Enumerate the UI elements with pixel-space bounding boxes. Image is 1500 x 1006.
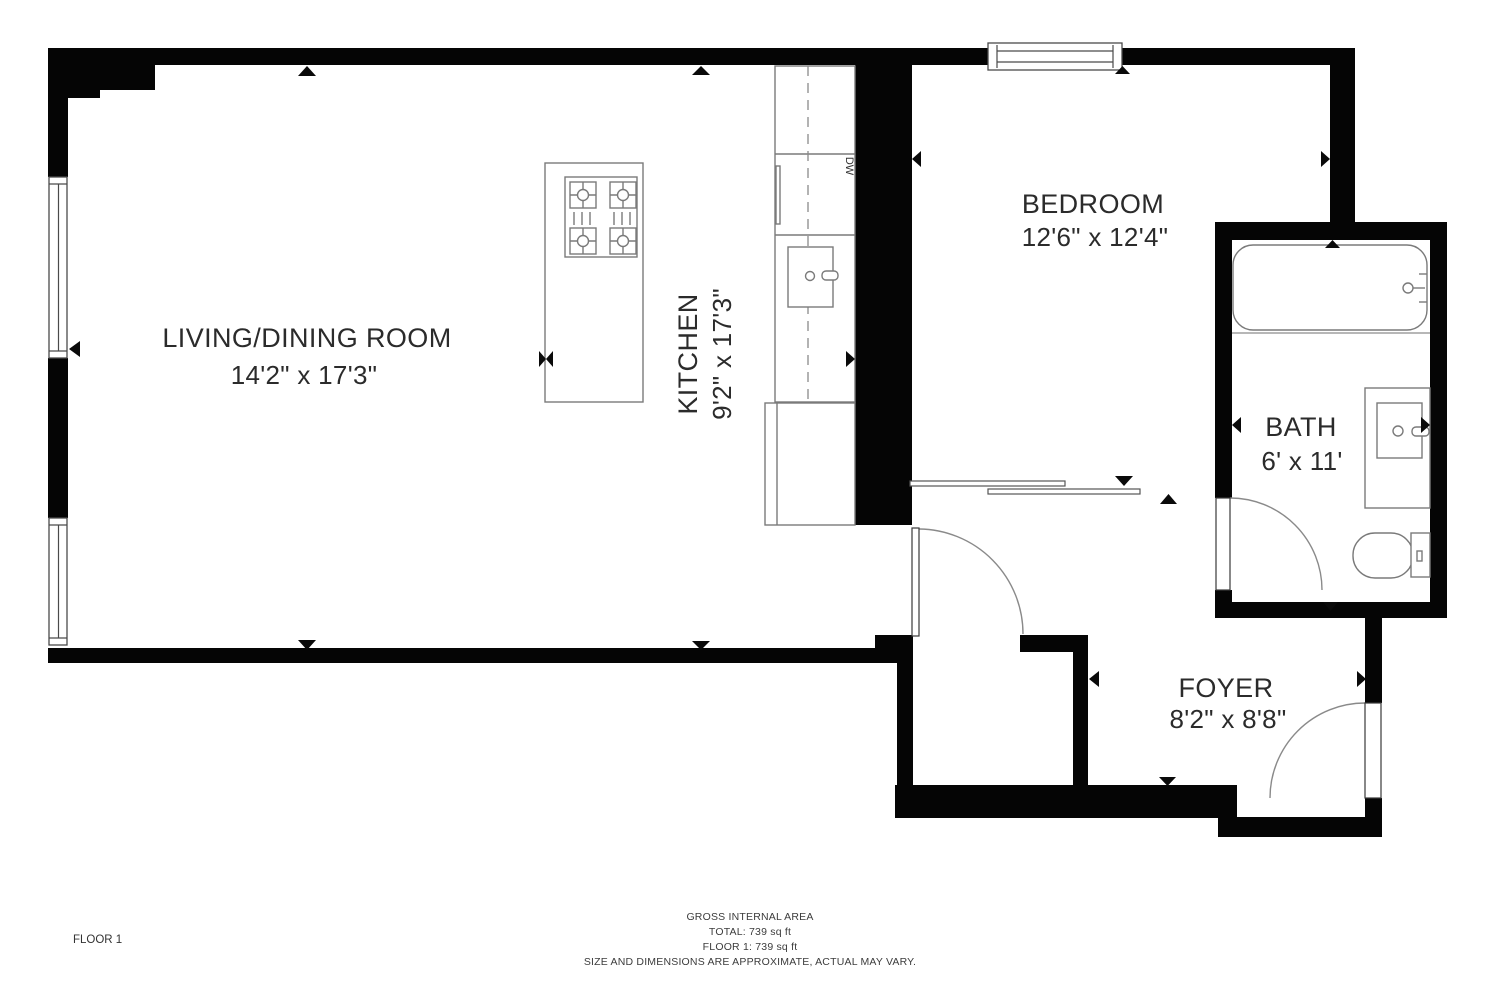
wall-top-right <box>1122 48 1355 65</box>
label-living-name: LIVING/DINING ROOM <box>162 323 451 353</box>
door-arc-bath <box>1230 498 1322 590</box>
door-arc-foyer-living <box>919 529 1023 634</box>
arrow-up-bath-top <box>1325 240 1340 248</box>
arrow-up-sliding-door <box>1160 494 1177 504</box>
toilet-tank <box>1411 533 1430 577</box>
room-labels: LIVING/DINING ROOM 14'2" x 17'3" KITCHEN… <box>162 157 1342 734</box>
wall-top-main <box>48 48 988 65</box>
wall-bath-right <box>1430 222 1447 618</box>
wall-closet-top <box>1020 635 1088 652</box>
arrow-left-bath <box>1232 417 1241 433</box>
label-foyer-name: FOYER <box>1178 673 1273 703</box>
door-leaf-foyer-living <box>912 528 919 636</box>
floorplan-svg: LIVING/DINING ROOM 14'2" x 17'3" KITCHEN… <box>0 0 1500 1006</box>
bath-vanity-faucet <box>1412 427 1429 436</box>
bath-vanity <box>1365 388 1430 508</box>
wall-foyer-bottom-west <box>895 785 1237 818</box>
wall-kitchen-bedroom <box>855 48 912 525</box>
wall-left-mid <box>48 358 68 518</box>
kitchen-counter <box>775 66 855 402</box>
arrow-left-closet <box>1089 671 1099 687</box>
door-leaf-entry <box>1365 703 1381 798</box>
label-bath-name: BATH <box>1265 412 1337 442</box>
arrow-up-living-top <box>298 66 316 76</box>
stove-burner <box>618 190 629 201</box>
wall-bottom-living <box>48 648 897 663</box>
wall-foyer-right-lower <box>1365 798 1382 837</box>
sliding-door-panel-2 <box>988 489 1140 494</box>
stove-burner <box>578 190 589 201</box>
arrow-left-living-window <box>69 341 80 357</box>
page-text: FLOOR 1 GROSS INTERNAL AREA TOTAL: 739 s… <box>73 911 916 968</box>
label-bedroom-name: BEDROOM <box>1022 189 1164 219</box>
label-foyer-dims: 8'2" x 8'8" <box>1170 704 1287 734</box>
window-bedroom <box>988 43 1122 70</box>
toilet-bowl <box>1353 533 1413 578</box>
arrow-left-bedroom-wall <box>912 151 921 167</box>
arrow-up-kitchen-top <box>692 66 710 75</box>
wall-closet-nw <box>875 635 913 663</box>
bathtub <box>1233 245 1427 330</box>
arrow-right-foyer-wall <box>1357 671 1366 687</box>
arrow-right-bedroom-wall <box>1321 151 1330 167</box>
wall-bath-top <box>1215 222 1447 240</box>
label-bedroom-dims: 12'6" x 12'4" <box>1022 222 1169 252</box>
doors <box>910 481 1381 798</box>
footer-floor1: FLOOR 1: 739 sq ft <box>703 941 798 953</box>
kitchen-sink-faucet <box>822 271 838 280</box>
footer-disclaimer: SIZE AND DIMENSIONS ARE APPROXIMATE, ACT… <box>584 956 916 968</box>
wall-foyer-right-upper <box>1365 618 1382 703</box>
stove-burner <box>618 236 629 247</box>
arrow-down-sliding-door <box>1115 476 1133 486</box>
wall-closet-right <box>1073 652 1088 785</box>
label-bath-dims: 6' x 11' <box>1261 446 1342 476</box>
sliding-door-panel-1 <box>910 481 1065 486</box>
label-living-dims: 14'2" x 17'3" <box>231 360 378 390</box>
label-kitchen-dims: 9'2" x 17'3" <box>707 288 737 420</box>
kitchen-island <box>545 163 643 402</box>
door-leaf-bath <box>1216 498 1230 590</box>
arrow-down-foyer-bottom <box>1159 777 1176 786</box>
wall-closet-left <box>897 663 913 790</box>
floor-label: FLOOR 1 <box>73 934 122 946</box>
footer-gross-area: GROSS INTERNAL AREA <box>686 911 813 923</box>
wall-bedroom-right <box>1330 48 1355 225</box>
wall-foyer-bottom-east <box>1218 817 1382 837</box>
wall-bath-left-upper <box>1215 240 1232 498</box>
footer-total: TOTAL: 739 sq ft <box>709 926 791 938</box>
label-dishwasher: DW <box>843 157 855 176</box>
floorplan-page: LIVING/DINING ROOM 14'2" x 17'3" KITCHEN… <box>0 0 1500 1006</box>
stove-burner <box>578 236 589 247</box>
kitchen-counter-lower <box>765 403 855 525</box>
wall-left-upper <box>48 48 68 177</box>
label-kitchen-name: KITCHEN <box>673 293 703 414</box>
